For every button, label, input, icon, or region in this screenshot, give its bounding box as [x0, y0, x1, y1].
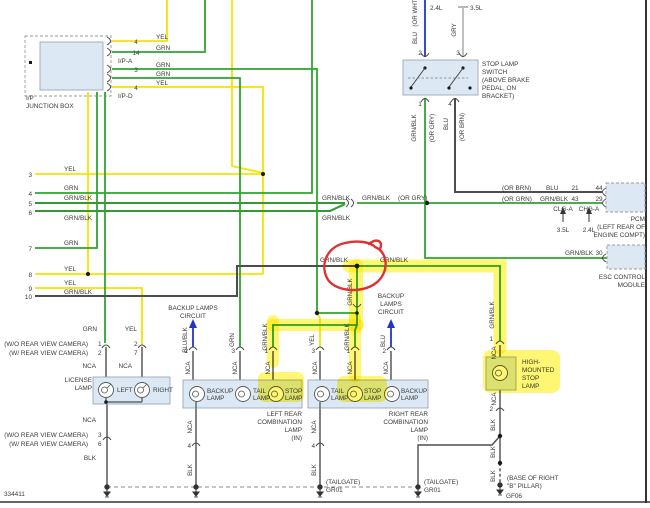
- svg-text:(BASE OF RIGHT: (BASE OF RIGHT: [507, 475, 559, 482]
- wire-junction-right: [357, 266, 500, 341]
- svg-text:(IN): (IN): [417, 435, 428, 442]
- ground-left-combo: [193, 485, 199, 497]
- jb-pin1-color: YEL: [156, 34, 169, 41]
- svg-text:CHG-A: CHG-A: [579, 206, 600, 213]
- esc-module: [607, 245, 645, 269]
- svg-text:3: 3: [28, 172, 32, 179]
- svg-text:BLU: BLU: [380, 335, 387, 347]
- svg-text:2: 2: [98, 350, 102, 357]
- jb-pin2-color: GRN: [156, 45, 171, 52]
- jb-pin2-num: 14: [132, 50, 140, 57]
- svg-text:BLK: BLK: [490, 469, 497, 482]
- svg-text:CIRCUIT: CIRCUIT: [378, 309, 404, 316]
- wires: [35, 0, 607, 487]
- jb-pin5-num: 4: [134, 85, 138, 92]
- svg-text:NCA: NCA: [491, 392, 498, 406]
- svg-text:10: 10: [25, 294, 33, 301]
- svg-text:GRN/BLK: GRN/BLK: [411, 114, 418, 142]
- svg-text:(OR GRY): (OR GRY): [398, 195, 427, 202]
- svg-text:LEFT REAR: LEFT REAR: [267, 411, 302, 418]
- svg-text:(W/O REAR VIEW CAMERA): (W/O REAR VIEW CAMERA): [4, 341, 88, 348]
- svg-text:PEDAL, ON: PEDAL, ON: [482, 85, 516, 92]
- svg-text:GRN/BLK: GRN/BLK: [322, 215, 351, 222]
- svg-text:BRACKET): BRACKET): [482, 93, 514, 100]
- svg-text:LAMPS: LAMPS: [380, 301, 402, 308]
- jb-name-2: JUNCTION BOX: [26, 103, 74, 110]
- svg-text:BLU: BLU: [412, 32, 419, 44]
- wire-row4: [35, 0, 312, 193]
- jb-pin3-num: 3: [134, 67, 138, 74]
- svg-text:BLU: BLU: [443, 118, 450, 130]
- ground-license: [104, 485, 110, 497]
- svg-text:6: 6: [98, 441, 102, 448]
- svg-text:GR01: GR01: [424, 487, 441, 494]
- jb-conn-d: I/P-D: [118, 93, 133, 100]
- svg-text:6: 6: [28, 210, 32, 217]
- svg-text:4: 4: [448, 101, 452, 108]
- svg-text:COMBINATION: COMBINATION: [383, 419, 428, 426]
- svg-text:CIRCUIT: CIRCUIT: [180, 313, 206, 320]
- svg-text:BACKUP: BACKUP: [207, 388, 233, 395]
- svg-text:(OR WHT): (OR WHT): [412, 0, 419, 27]
- svg-text:21: 21: [571, 185, 579, 192]
- svg-text:(TAILGATE): (TAILGATE): [326, 479, 360, 486]
- svg-text:NCA: NCA: [232, 361, 239, 375]
- svg-text:2.4L: 2.4L: [430, 5, 443, 12]
- svg-text:1: 1: [98, 341, 102, 348]
- svg-text:(ABOVE BRAKE: (ABOVE BRAKE: [482, 77, 530, 84]
- bulb-license-right: [135, 383, 150, 398]
- svg-text:BLK: BLK: [490, 418, 497, 431]
- svg-text:GRN/BLK: GRN/BLK: [540, 196, 569, 203]
- svg-text:BLK: BLK: [490, 445, 497, 458]
- svg-text:RIGHT REAR: RIGHT REAR: [389, 411, 429, 418]
- svg-text:YEL: YEL: [64, 280, 77, 287]
- svg-text:44: 44: [595, 185, 603, 192]
- svg-text:LAMP: LAMP: [401, 395, 418, 402]
- svg-text:STOP LAMP: STOP LAMP: [482, 61, 518, 68]
- svg-text:BLK: BLK: [84, 455, 97, 462]
- svg-text:GRN/BLK: GRN/BLK: [362, 195, 391, 202]
- svg-text:LEFT: LEFT: [117, 387, 133, 394]
- svg-text:NCA: NCA: [187, 420, 194, 434]
- svg-text:2: 2: [382, 348, 386, 355]
- ground-right-combo: [317, 485, 323, 497]
- jb-conn-a: I/P-A: [118, 58, 133, 65]
- svg-text:2: 2: [184, 348, 188, 355]
- jb-name-1: I/P: [26, 95, 34, 102]
- wiring-diagram: 4 YEL 14 GRN I/P-A 3 GRN GRN 4 YEL I/P-D…: [0, 0, 650, 508]
- svg-text:GRN: GRN: [64, 185, 79, 192]
- svg-text:4: 4: [187, 443, 191, 450]
- bulb-left-backup: [190, 387, 205, 402]
- ground-tailgate-2: [415, 485, 421, 497]
- svg-text:2: 2: [489, 406, 493, 413]
- svg-text:4: 4: [28, 191, 32, 198]
- svg-text:43: 43: [571, 196, 579, 203]
- ground-b-pillar: [497, 483, 503, 495]
- svg-text:(W/ REAR VIEW CAMERA): (W/ REAR VIEW CAMERA): [9, 441, 88, 448]
- svg-text:GF06: GF06: [506, 493, 522, 500]
- bulb-left-tail: [236, 387, 251, 402]
- bulb-license-left: [99, 383, 114, 398]
- jb-pin3-color: GRN: [156, 62, 171, 69]
- svg-text:RIGHT: RIGHT: [153, 387, 173, 394]
- svg-text:NCA: NCA: [312, 361, 319, 375]
- svg-text:(TAILGATE): (TAILGATE): [424, 479, 458, 486]
- svg-text:(W/O REAR VIEW CAMERA): (W/O REAR VIEW CAMERA): [4, 432, 88, 439]
- svg-text:GRN/BLK: GRN/BLK: [64, 215, 93, 222]
- svg-text:4: 4: [311, 443, 315, 450]
- svg-text:7: 7: [134, 350, 138, 357]
- svg-text:NCA: NCA: [383, 361, 390, 375]
- jb-pin1-num: 4: [134, 39, 138, 46]
- svg-text:BACKUP: BACKUP: [378, 293, 404, 300]
- svg-text:BLU: BLU: [546, 185, 559, 192]
- svg-text:NCA: NCA: [83, 417, 97, 424]
- svg-text:PCM: PCM: [631, 216, 645, 223]
- wire-row6: [35, 204, 345, 211]
- svg-text:ESC CONTROL: ESC CONTROL: [599, 274, 646, 281]
- svg-text:YEL: YEL: [125, 326, 138, 333]
- svg-text:8: 8: [28, 272, 32, 279]
- svg-text:BLK: BLK: [311, 463, 318, 476]
- svg-text:30: 30: [595, 250, 603, 257]
- svg-text:YEL: YEL: [309, 334, 316, 346]
- svg-text:3: 3: [311, 348, 315, 355]
- svg-text:(LEFT REAR OF: (LEFT REAR OF: [597, 224, 645, 231]
- svg-text:LICENSE: LICENSE: [65, 377, 92, 384]
- svg-text:9: 9: [28, 286, 32, 293]
- junction-box: [25, 36, 111, 96]
- diagram-canvas: 4 YEL 14 GRN I/P-A 3 GRN GRN 4 YEL I/P-D…: [0, 0, 650, 508]
- svg-text:2: 2: [134, 341, 138, 348]
- svg-text:YEL: YEL: [64, 266, 77, 273]
- svg-text:2: 2: [418, 50, 422, 57]
- svg-text:BACKUP LAMPS: BACKUP LAMPS: [168, 305, 218, 312]
- svg-text:ENGINE COMPT): ENGINE COMPT): [594, 232, 645, 239]
- svg-text:NCA: NCA: [311, 420, 318, 434]
- bulb-right-tail: [315, 387, 330, 402]
- svg-text:LAMP: LAMP: [75, 385, 92, 392]
- svg-text:3: 3: [231, 348, 235, 355]
- svg-text:3: 3: [456, 50, 460, 57]
- svg-text:NCA: NCA: [185, 361, 192, 375]
- svg-text:GRN: GRN: [229, 333, 236, 347]
- svg-text:BLK: BLK: [187, 463, 194, 476]
- svg-text:(W/ REAR VIEW CAMERA): (W/ REAR VIEW CAMERA): [9, 350, 88, 357]
- svg-text:(OR GRN): (OR GRN): [502, 196, 532, 203]
- svg-text:GRN: GRN: [83, 326, 98, 333]
- svg-text:NCA: NCA: [119, 363, 133, 370]
- wire-grn-ipd3: [112, 69, 317, 313]
- svg-text:GRN: GRN: [64, 240, 79, 247]
- svg-text:1: 1: [489, 336, 493, 343]
- svg-text:MODULE: MODULE: [618, 282, 645, 289]
- jb-pin5-color: YEL: [156, 80, 169, 87]
- svg-text:3.5L: 3.5L: [557, 227, 570, 234]
- svg-text:5: 5: [28, 201, 32, 208]
- svg-text:29: 29: [595, 196, 603, 203]
- svg-text:GR01: GR01: [326, 487, 343, 494]
- stop-lamp-switch: [403, 60, 478, 95]
- svg-text:NCA: NCA: [83, 363, 97, 370]
- svg-text:GRN/BLK: GRN/BLK: [64, 289, 93, 296]
- svg-text:1: 1: [418, 101, 422, 108]
- svg-text:LAMP: LAMP: [411, 427, 428, 434]
- svg-text:(OR BRN): (OR BRN): [502, 185, 531, 192]
- svg-text:GRN/BLK: GRN/BLK: [322, 195, 351, 202]
- wire-switch-pin1: [425, 98, 607, 258]
- svg-text:GRN/BLK: GRN/BLK: [64, 195, 93, 202]
- svg-text:LAMP: LAMP: [285, 427, 302, 434]
- svg-text:3.5L: 3.5L: [470, 5, 483, 12]
- svg-text:"B" PILLAR): "B" PILLAR): [507, 483, 542, 490]
- svg-text:(OR GRY): (OR GRY): [429, 114, 436, 142]
- svg-text:SWITCH: SWITCH: [482, 69, 508, 76]
- svg-text:BACKUP: BACKUP: [401, 388, 427, 395]
- diagram-id: 334411: [4, 491, 25, 498]
- wire-switch-pin4: [455, 98, 602, 192]
- svg-text:(OR BRN): (OR BRN): [459, 113, 466, 141]
- svg-text:CLG-A: CLG-A: [553, 206, 573, 213]
- svg-text:7: 7: [28, 246, 32, 253]
- svg-text:GRN/BLK: GRN/BLK: [565, 250, 594, 257]
- svg-text:(IN): (IN): [291, 435, 302, 442]
- svg-text:COMBINATION: COMBINATION: [257, 419, 302, 426]
- svg-text:LAMP: LAMP: [207, 395, 224, 402]
- svg-text:GRY: GRY: [451, 23, 458, 36]
- svg-text:YEL: YEL: [64, 166, 77, 173]
- svg-text:3: 3: [98, 432, 102, 439]
- jb-pin4-color: GRN: [156, 71, 171, 78]
